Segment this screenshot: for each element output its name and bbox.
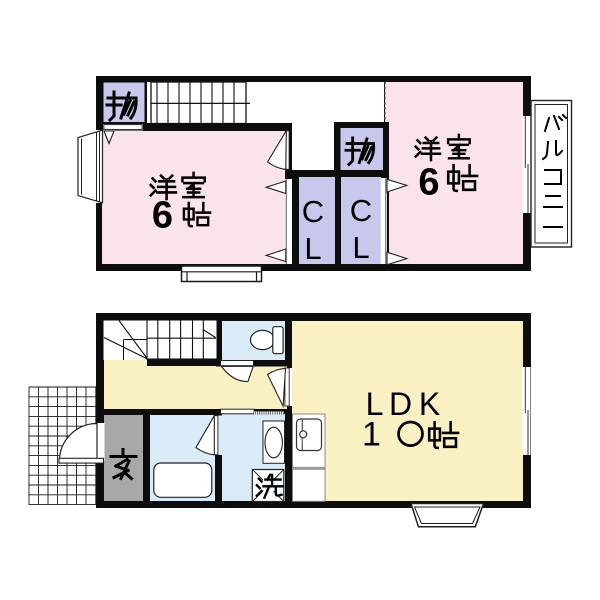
svg-text:C: C [302, 194, 324, 229]
svg-text:6: 6 [152, 195, 173, 237]
svg-text:K: K [419, 386, 440, 422]
svg-text:1: 1 [362, 416, 381, 454]
svg-text:6: 6 [418, 162, 439, 204]
svg-text:L: L [352, 230, 369, 265]
svg-text:L: L [304, 231, 321, 266]
svg-text:C: C [350, 193, 372, 228]
svg-text:D: D [389, 386, 412, 422]
